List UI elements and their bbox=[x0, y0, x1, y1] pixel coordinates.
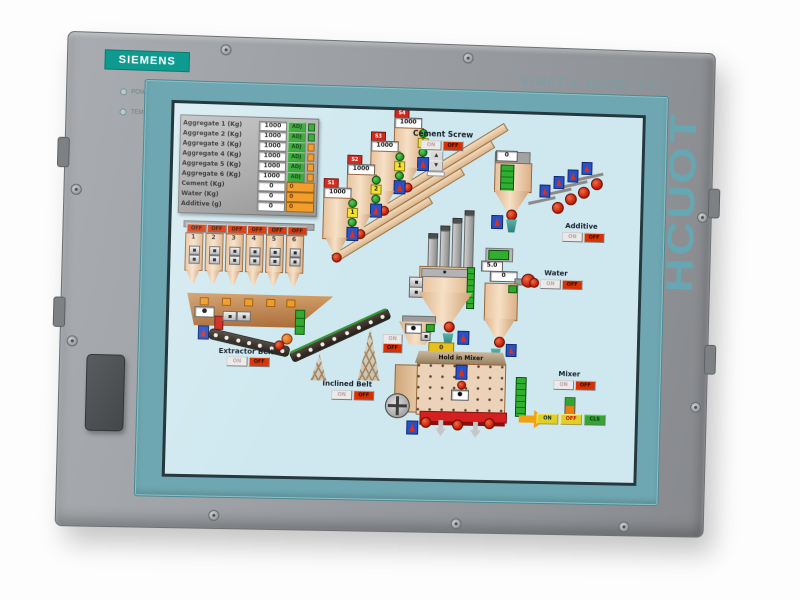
bin-number: 6 bbox=[286, 236, 302, 243]
water-valve-icon[interactable] bbox=[494, 337, 505, 348]
mixer-gearbox-icon bbox=[385, 393, 411, 419]
bin-number: 3 bbox=[226, 234, 242, 241]
motor-icon bbox=[455, 365, 467, 380]
bin-cone bbox=[206, 270, 219, 284]
bin-cone bbox=[267, 272, 280, 286]
status-square bbox=[308, 133, 315, 141]
status-square bbox=[508, 285, 517, 293]
cement-screw-off-button[interactable]: OFF bbox=[442, 141, 463, 152]
screw-icon bbox=[66, 335, 78, 346]
motor-icon bbox=[581, 162, 592, 175]
mounting-lug bbox=[53, 296, 66, 327]
simatic-panel-pc: SIEMENS POWER TEMP SIMATIC PANEL PC TOUC… bbox=[55, 31, 716, 538]
gate-square bbox=[286, 299, 295, 307]
roller-icon bbox=[295, 352, 300, 357]
hmi-touchscreen: Aggregate 1 (Kg) 1000 ADJ Aggregate 2 (K… bbox=[162, 100, 646, 486]
temp-led-dot bbox=[119, 108, 126, 115]
holding-hopper-off-button[interactable]: OFF bbox=[382, 343, 402, 353]
screw-motor-icon bbox=[565, 193, 577, 205]
bin-cone bbox=[287, 272, 300, 286]
run-indicator bbox=[372, 175, 381, 184]
aggregate-bin-6: OFF 6 bbox=[285, 226, 304, 289]
inclined-belt-label: Inclined Belt bbox=[322, 380, 372, 389]
mounting-lug bbox=[708, 189, 720, 219]
screw-icon bbox=[463, 52, 474, 63]
bin-number: 2 bbox=[205, 234, 221, 241]
run-indicator bbox=[348, 218, 357, 227]
v ibrator-icon bbox=[421, 332, 431, 341]
status-square bbox=[307, 153, 314, 161]
truss-tower bbox=[358, 328, 381, 381]
motor-icon bbox=[198, 325, 209, 339]
vibrator-icon bbox=[249, 256, 260, 265]
run-indicator bbox=[395, 152, 404, 161]
batch-counter: 2 bbox=[370, 184, 381, 194]
status-square bbox=[307, 163, 314, 171]
vibrator-icon bbox=[237, 311, 251, 321]
vibrator-icon bbox=[269, 257, 280, 266]
gate-square bbox=[266, 299, 275, 307]
speed-down-button[interactable]: ▼ bbox=[429, 160, 443, 171]
roller-icon bbox=[380, 314, 385, 319]
adj-button[interactable]: ADJ bbox=[287, 162, 305, 173]
run-indicator bbox=[371, 194, 380, 203]
additive-off-button[interactable]: OFF bbox=[584, 232, 605, 243]
run-indicator bbox=[348, 199, 357, 208]
additive-on-button[interactable]: ON bbox=[562, 232, 583, 243]
aggregate-bin-2: OFF 2 bbox=[204, 224, 223, 287]
motor-icon bbox=[539, 184, 550, 197]
status-square bbox=[307, 143, 314, 151]
cement-screw-controls: ON OFF bbox=[421, 140, 464, 151]
vibrator-icon bbox=[249, 247, 260, 256]
bin-cone bbox=[186, 270, 200, 284]
aggregate-bin-5: OFF 5 bbox=[265, 226, 284, 289]
roller-icon bbox=[247, 340, 252, 345]
siemens-logo: SIEMENS bbox=[104, 49, 190, 72]
run-indicator bbox=[395, 171, 404, 180]
screw-icon bbox=[690, 402, 701, 413]
adj-button[interactable]: ADJ bbox=[288, 132, 306, 143]
vibrator-icon bbox=[189, 255, 200, 264]
silo-s1: S1 1000 1 bbox=[321, 178, 363, 271]
bin-number: 5 bbox=[266, 236, 282, 243]
mounting-lug bbox=[704, 345, 716, 375]
roller-icon bbox=[368, 319, 373, 324]
discharge-valve-icon[interactable] bbox=[484, 418, 495, 429]
motor-icon bbox=[393, 180, 405, 194]
screw-icon bbox=[208, 510, 219, 521]
extractor-belt-controls: ON OFF bbox=[226, 356, 270, 367]
cement-screw-on-button[interactable]: ON bbox=[421, 140, 442, 151]
batch-counter: 1 bbox=[347, 208, 358, 218]
adj-button[interactable]: ADJ bbox=[287, 142, 305, 153]
mixer-on-button[interactable]: ON bbox=[553, 380, 574, 390]
mixer-label: Mixer bbox=[558, 370, 580, 378]
hopper-display: ● bbox=[194, 306, 214, 318]
roller-icon bbox=[236, 338, 241, 343]
inlet-pipe bbox=[439, 230, 450, 268]
aggregate-bin-4: OFF 4 bbox=[245, 225, 264, 288]
motor-icon bbox=[506, 344, 517, 357]
discharge-valve-icon[interactable] bbox=[452, 419, 463, 430]
vibrator-icon bbox=[289, 257, 300, 266]
water-off-button[interactable]: OFF bbox=[562, 280, 583, 290]
vibrator-icon bbox=[269, 248, 280, 257]
status-square bbox=[308, 123, 315, 131]
water-on-button[interactable]: ON bbox=[540, 279, 561, 289]
inlet-pipe bbox=[451, 223, 462, 269]
screw-motor-icon bbox=[591, 178, 603, 190]
inclined-belt-controls: ON OFF bbox=[331, 390, 374, 401]
vibrator-icon bbox=[290, 248, 301, 257]
gate-square bbox=[200, 297, 209, 305]
extractor-belt-label: Extractor Belt bbox=[219, 347, 274, 356]
water-level-bar bbox=[488, 250, 509, 261]
gate-square bbox=[244, 298, 253, 306]
status-square bbox=[426, 324, 435, 332]
roller-icon bbox=[332, 336, 337, 341]
outlet-valve-icon[interactable] bbox=[332, 252, 342, 262]
additive-controls: ON OFF bbox=[562, 232, 605, 243]
mixer-cmd-cls-button[interactable]: CLS bbox=[584, 414, 606, 425]
vibrator-icon bbox=[222, 311, 236, 321]
motor-icon bbox=[553, 176, 564, 189]
extractor-off-button[interactable]: OFF bbox=[248, 357, 269, 368]
inclined-on-button[interactable]: ON bbox=[331, 390, 352, 400]
bin-cone bbox=[247, 271, 260, 285]
screw-icon bbox=[220, 44, 231, 55]
roller-icon bbox=[356, 325, 361, 330]
bin-number: 4 bbox=[246, 235, 262, 242]
additive-label: Additive bbox=[565, 222, 598, 231]
vibrator-icon bbox=[209, 246, 220, 255]
hopper-display: ● bbox=[405, 323, 422, 333]
mixer-cmd-on-button[interactable]: ON bbox=[536, 413, 558, 424]
water-controls: ON OFF bbox=[540, 279, 583, 290]
adj-button[interactable]: ADJ bbox=[287, 172, 305, 183]
motor-icon bbox=[406, 420, 418, 434]
adj-button[interactable]: ADJ bbox=[287, 152, 305, 163]
vibrator-icon bbox=[229, 256, 240, 265]
roller-icon bbox=[320, 341, 325, 346]
adj-button[interactable]: ADJ bbox=[288, 122, 306, 133]
roller-icon bbox=[224, 335, 229, 340]
amount-cell: 0 bbox=[286, 202, 314, 213]
mixer-off-button[interactable]: OFF bbox=[575, 380, 596, 390]
aggregate-bin-3: OFF 3 bbox=[224, 224, 243, 287]
row-label: Additive (g) bbox=[181, 199, 256, 211]
water-label: Water bbox=[544, 269, 568, 278]
mounting-lug bbox=[57, 137, 70, 168]
discharge-valve-icon[interactable] bbox=[444, 321, 455, 332]
mixer-state-indicator bbox=[564, 397, 575, 415]
cement-level-bar bbox=[500, 164, 515, 191]
vibrator-icon bbox=[189, 245, 200, 254]
vibrator-icon bbox=[229, 247, 240, 256]
outlet-valve-icon[interactable] bbox=[506, 209, 517, 220]
extractor-on-button[interactable]: ON bbox=[226, 356, 247, 367]
roller-icon bbox=[308, 347, 313, 352]
roller-icon bbox=[213, 332, 218, 337]
aggregate-bin-1: OFF 1 bbox=[184, 223, 203, 286]
mixer-controls: ON OFF bbox=[553, 380, 596, 391]
screw-icon bbox=[618, 521, 629, 532]
gate-square bbox=[222, 298, 231, 306]
motor-icon bbox=[491, 215, 503, 229]
vibrator-icon bbox=[209, 255, 220, 264]
inlet-pipe bbox=[463, 215, 474, 269]
usb-cover[interactable] bbox=[85, 354, 126, 432]
motor-icon bbox=[417, 157, 429, 171]
screw-motor-icon bbox=[552, 202, 564, 214]
cement-weight-display: 0 bbox=[496, 150, 518, 162]
screen-bezel: Aggregate 1 (Kg) 1000 ADJ Aggregate 2 (K… bbox=[134, 79, 669, 506]
screw-icon bbox=[450, 518, 461, 529]
status-square bbox=[295, 326, 305, 335]
water-pump-icon bbox=[529, 278, 539, 288]
inlet-pipe bbox=[427, 238, 438, 268]
screw-icon bbox=[70, 184, 82, 195]
collar-dot bbox=[443, 270, 446, 273]
mixer-level-bar bbox=[515, 377, 527, 417]
mixer-command-bar: ON OFF CLS bbox=[536, 413, 605, 425]
screw-motor-icon bbox=[578, 187, 590, 199]
bin-number: 1 bbox=[185, 233, 201, 240]
actual-value: 0 bbox=[257, 201, 285, 212]
batch-table: Aggregate 1 (Kg) 1000 ADJ Aggregate 2 (K… bbox=[178, 114, 320, 217]
roller-icon bbox=[344, 330, 349, 335]
motor-icon bbox=[457, 331, 469, 345]
hopper-collar bbox=[421, 268, 471, 278]
mixer-cmd-off-button[interactable]: OFF bbox=[560, 414, 582, 425]
photo-stage: SIEMENS POWER TEMP SIMATIC PANEL PC TOUC… bbox=[0, 0, 800, 600]
power-led-dot bbox=[120, 88, 127, 95]
bin-cone bbox=[226, 271, 239, 285]
motor-icon bbox=[370, 203, 382, 217]
hopper-level-bar bbox=[466, 267, 475, 309]
mixer-display: ● bbox=[451, 389, 469, 400]
batch-counter: 1 bbox=[394, 161, 405, 171]
motor-icon bbox=[567, 169, 578, 182]
inclined-off-button[interactable]: OFF bbox=[353, 390, 374, 400]
weigh-bucket-icon bbox=[505, 219, 518, 232]
truss-tower bbox=[310, 354, 327, 380]
speed-scale bbox=[427, 171, 445, 177]
status-square bbox=[307, 173, 314, 181]
fan-blade bbox=[388, 404, 407, 407]
discharge-valve-icon[interactable] bbox=[420, 417, 431, 428]
motor-icon bbox=[346, 227, 358, 241]
